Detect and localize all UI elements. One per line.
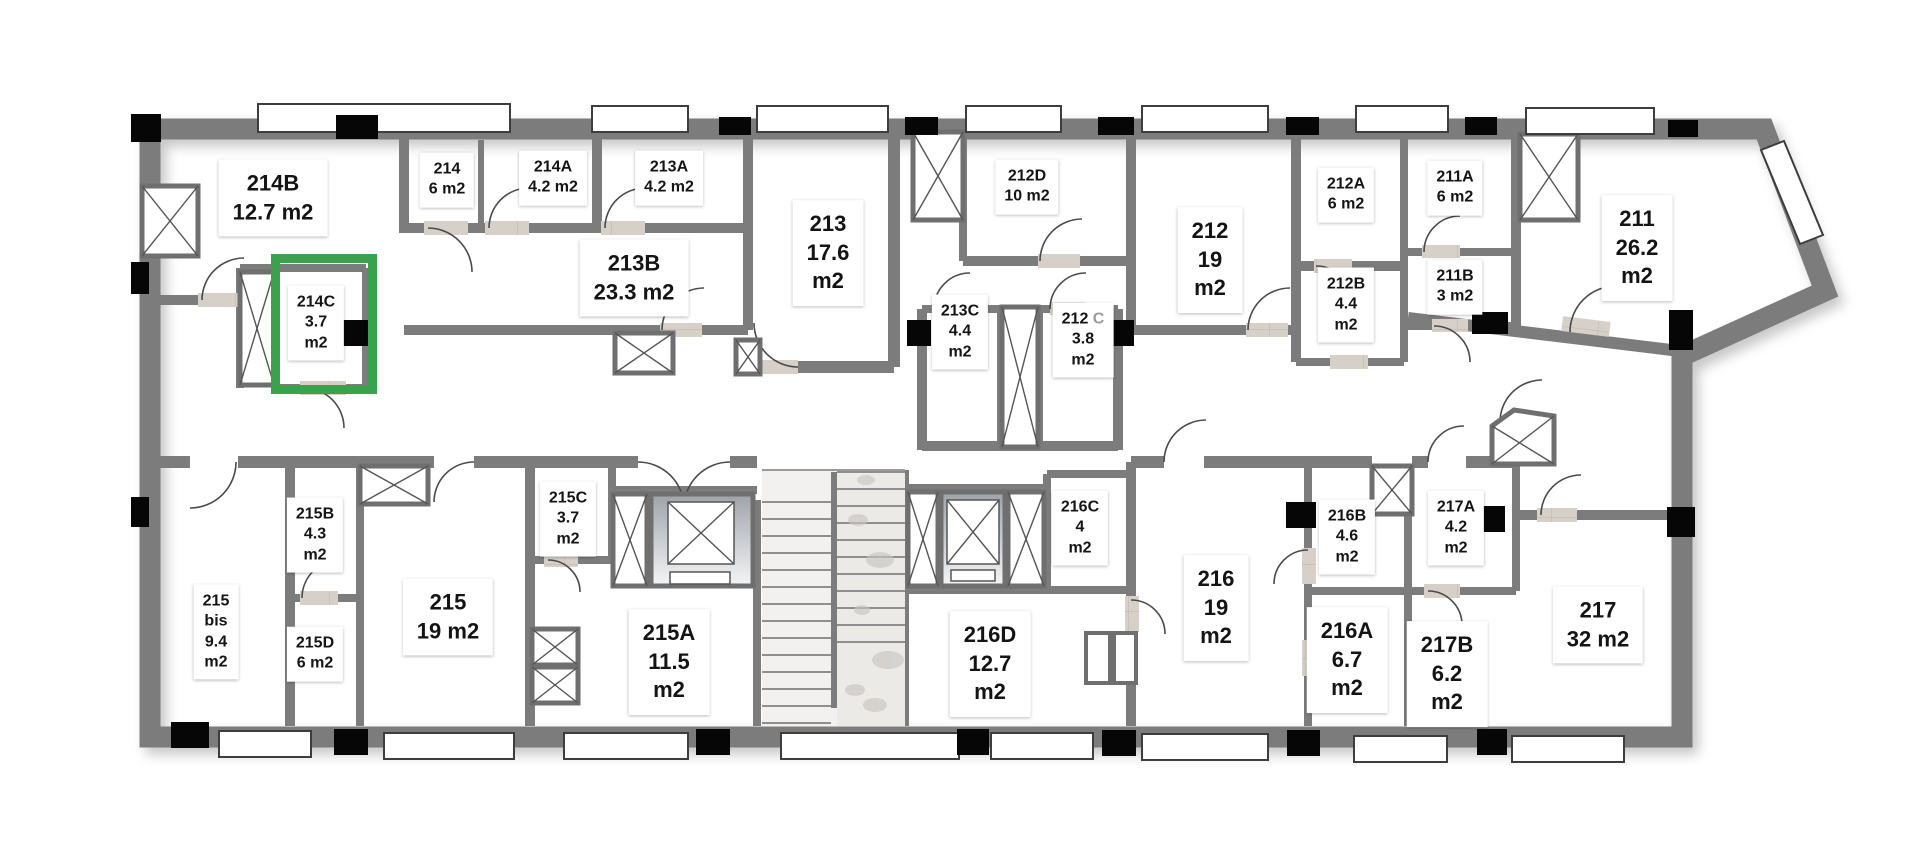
stair-rail xyxy=(831,472,837,708)
room-label-217A[interactable]: 217A4.2m2 xyxy=(1428,491,1484,566)
shaft-213-corner xyxy=(736,340,760,374)
room-label-217[interactable]: 21732 m2 xyxy=(1553,586,1643,663)
shaft-212c xyxy=(1002,307,1038,447)
duct-216d xyxy=(1086,633,1136,683)
room-label-215B[interactable]: 215B4.3m2 xyxy=(287,498,343,573)
room-label-212B[interactable]: 212B4.4m2 xyxy=(1318,268,1374,343)
staircase xyxy=(762,470,905,726)
room-label-216B[interactable]: 216B4.6m2 xyxy=(1319,500,1375,575)
room-label-215[interactable]: 21519 m2 xyxy=(403,578,493,655)
room-label-216A[interactable]: 216A6.7m2 xyxy=(1307,607,1388,713)
shaft-214c xyxy=(240,272,274,385)
room-label-217B[interactable]: 217B6.2m2 xyxy=(1407,621,1488,727)
room-label-213[interactable]: 21317.6m2 xyxy=(793,200,864,306)
room-label-211[interactable]: 21126.2m2 xyxy=(1602,195,1673,301)
room-label-215-bis[interactable]: 215bis9.4m2 xyxy=(194,584,239,679)
shaft-215a-double xyxy=(532,629,578,703)
room-label-212[interactable]: 21219m2 xyxy=(1178,207,1243,313)
room-label-212C[interactable]: 212 C3.8m2 xyxy=(1053,303,1114,378)
room-label-211B[interactable]: 211B3 m2 xyxy=(1427,260,1482,315)
shaft-211 xyxy=(1520,134,1578,220)
elevator-bank-left xyxy=(613,494,753,586)
room-label-215A[interactable]: 215A11.5m2 xyxy=(629,609,710,715)
room-label-216D[interactable]: 216D12.7m2 xyxy=(950,611,1031,717)
room-label-215D[interactable]: 215D6 m2 xyxy=(287,627,343,682)
room-label-214[interactable]: 2146 m2 xyxy=(420,153,474,208)
room-label-214B[interactable]: 214B12.7 m2 xyxy=(219,159,328,236)
shaft-217-corridor xyxy=(1492,410,1554,464)
room-label-212D[interactable]: 212D10 m2 xyxy=(995,160,1058,215)
room-label-213A[interactable]: 213A4.2 m2 xyxy=(635,151,703,206)
room-label-214A[interactable]: 214A4.2 m2 xyxy=(519,151,587,206)
shaft-213b-corner xyxy=(615,333,673,373)
elevator-bank-right xyxy=(908,492,1044,586)
shaft-left-wall xyxy=(142,186,198,256)
room-label-216[interactable]: 21619m2 xyxy=(1184,555,1249,661)
shaft-215 xyxy=(360,466,428,504)
room-label-216C[interactable]: 216C4m2 xyxy=(1052,491,1108,566)
room-label-215C[interactable]: 215C3.7m2 xyxy=(540,482,596,557)
room-label-214C[interactable]: 214C3.7m2 xyxy=(288,286,344,361)
floor-plan: 214B12.7 m22146 m2214A4.2 m2213A4.2 m221… xyxy=(0,0,1926,861)
floor-plan-drawing xyxy=(0,0,1926,861)
room-label-213C[interactable]: 213C4.4m2 xyxy=(932,295,988,370)
shaft-top-middle xyxy=(913,132,963,220)
room-label-212A[interactable]: 212A6 m2 xyxy=(1318,168,1374,223)
room-label-211A[interactable]: 211A6 m2 xyxy=(1427,161,1482,216)
shaft-216b-217a xyxy=(1372,466,1412,514)
room-label-213B[interactable]: 213B23.3 m2 xyxy=(580,239,689,316)
